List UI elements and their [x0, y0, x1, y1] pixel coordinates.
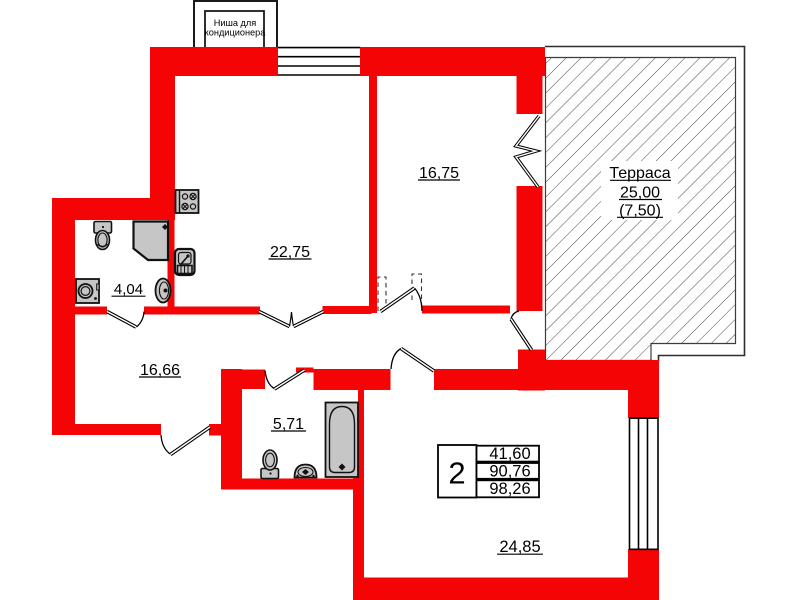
svg-text:2: 2 [448, 456, 465, 491]
svg-text:24,85: 24,85 [499, 538, 540, 556]
svg-text:Ниша для: Ниша для [214, 18, 257, 28]
svg-text:90,76: 90,76 [489, 462, 530, 480]
svg-text:Терраса: Терраса [609, 165, 670, 182]
svg-text:кондиционера: кондиционера [205, 28, 267, 38]
svg-text:98,26: 98,26 [489, 480, 530, 498]
svg-text:41,60: 41,60 [489, 445, 530, 463]
svg-text:4,04: 4,04 [114, 281, 143, 298]
